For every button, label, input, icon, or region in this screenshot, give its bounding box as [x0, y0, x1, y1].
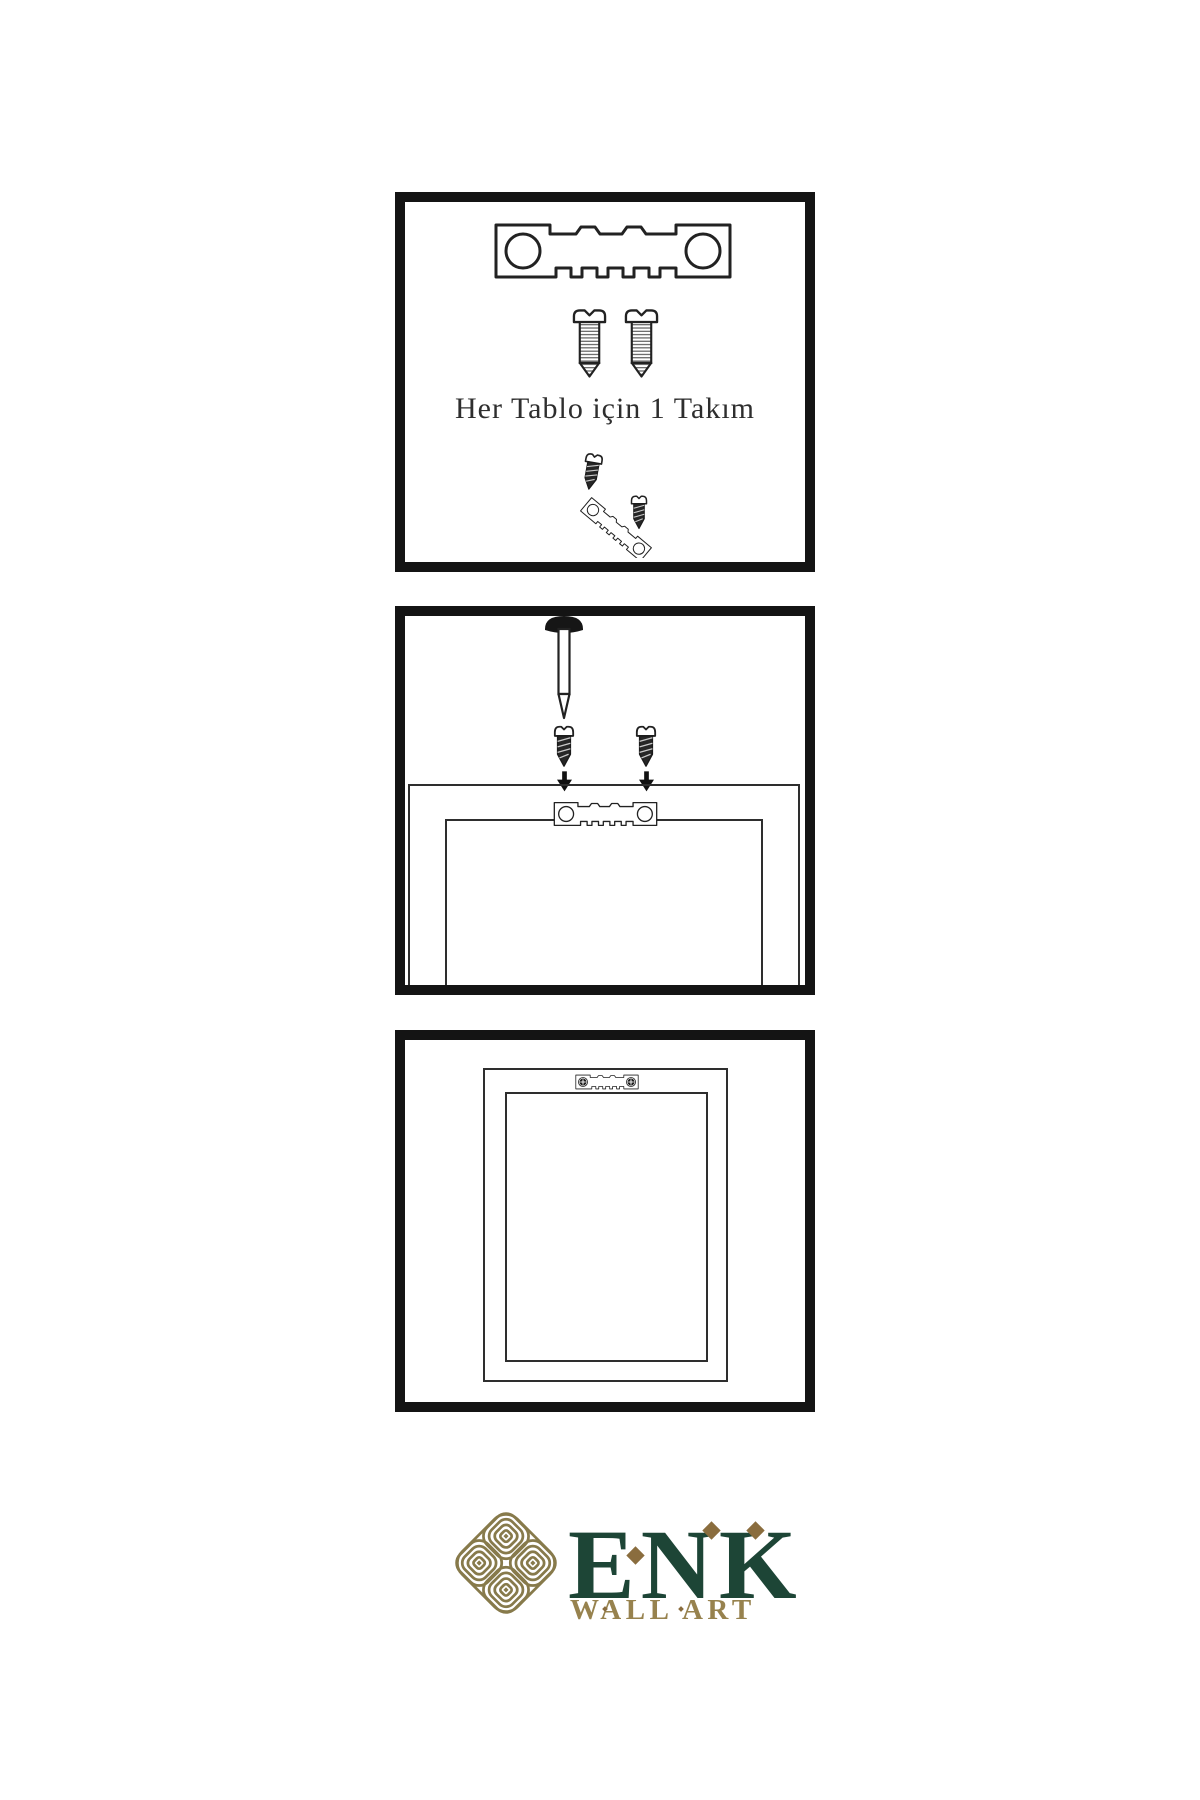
- brand-subtitle: WALL ART: [570, 1596, 756, 1625]
- sawtooth-hanger-icon: [493, 222, 733, 280]
- sawtooth-hanger-icon: [553, 801, 658, 827]
- knot-emblem-icon: [442, 1502, 570, 1624]
- screw-icon: [635, 724, 657, 768]
- screw-hanger-assembly-icon: [577, 450, 669, 558]
- screw-icon: [553, 724, 575, 768]
- step-1-caption: Her Tablo için 1 Takım: [405, 392, 805, 426]
- step-1-panel: Her Tablo için 1 Takım: [395, 192, 815, 572]
- frame-inner-outline: [445, 819, 763, 995]
- step-3-panel: [395, 1030, 815, 1412]
- instruction-sheet: Her Tablo için 1 Takım: [0, 0, 1200, 1800]
- frame-inner-outline: [505, 1092, 708, 1362]
- step-2-panel: [395, 606, 815, 995]
- wall-nail-icon: [542, 616, 586, 722]
- screw-icon: [624, 306, 659, 379]
- screw-icon: [572, 306, 607, 379]
- installed-sawtooth-hanger-icon: [575, 1074, 639, 1090]
